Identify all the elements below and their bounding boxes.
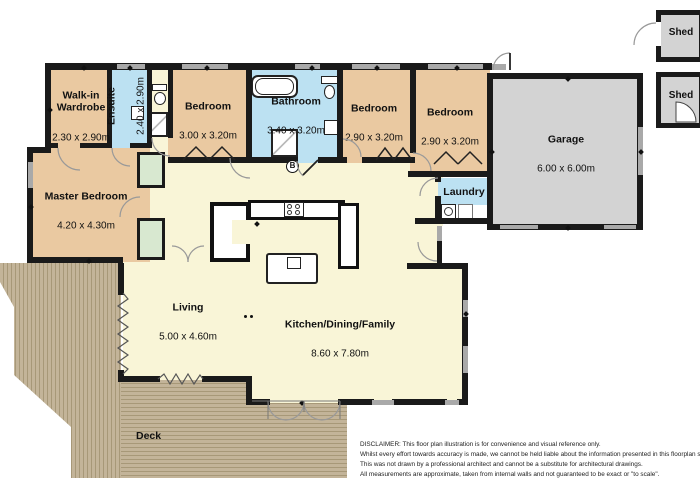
kitchen-bench-side — [338, 203, 359, 269]
window — [295, 64, 320, 69]
room-dims: 8.60 x 7.80m — [285, 349, 395, 362]
room-label-master: Master Bedroom 4.20 x 4.30m — [45, 173, 128, 252]
floor-plan: B Walk-in Wardrobe 2.30 x 2.90m Ensuite … — [0, 0, 700, 500]
stove-burner-icon — [287, 204, 292, 209]
room-name: Shed — [669, 90, 693, 102]
room-label-garage: Garage 6.00 x 6.00m — [537, 116, 595, 195]
wall-segment — [118, 263, 124, 295]
room-name: Shed — [669, 27, 693, 39]
wall-segment — [318, 157, 340, 163]
room-label-kitchen: Kitchen/Dining/Family 8.60 x 7.80m — [285, 301, 395, 380]
disclaimer-line: Whilst every effort towards accuracy is … — [360, 450, 700, 460]
room-dims: 3.00 x 3.20m — [179, 131, 237, 144]
entry-nook-floor — [405, 218, 440, 268]
disclaimer-text: DISCLAIMER: This floor plan illustration… — [360, 440, 700, 480]
room-name: Garage — [537, 134, 595, 146]
wall-segment — [462, 268, 468, 405]
room-label-deck: Deck — [136, 412, 161, 460]
room-name: Kitchen/Dining/Family — [285, 319, 395, 331]
room-label-living: Living 5.00 x 4.60m — [159, 284, 217, 363]
room-name: Bathroom — [267, 96, 325, 108]
wall-segment — [45, 63, 492, 70]
closet-top — [137, 152, 165, 188]
window — [463, 346, 468, 373]
room-name: Laundry — [443, 186, 484, 198]
wall-segment — [27, 257, 123, 263]
room-label-bathroom: Bathroom 3.40 x 3.20m — [267, 78, 325, 157]
room-dims: 2.40 x 2.90m — [136, 77, 149, 135]
window — [372, 400, 394, 405]
entry-porch — [441, 226, 487, 265]
wall-segment — [415, 218, 492, 224]
wall-segment — [392, 399, 447, 405]
closet-bottom — [137, 218, 165, 260]
room-label-laundry: Laundry — [443, 168, 484, 216]
disclaimer-line: DISCLAIMER: This floor plan illustration… — [360, 440, 700, 450]
window — [492, 64, 506, 70]
wall-segment — [437, 240, 442, 269]
wall-segment — [337, 68, 343, 160]
window — [604, 225, 636, 229]
room-label-ensuite: Ensuite 2.40 x 2.90m — [88, 77, 167, 135]
stove-burner-icon — [295, 204, 300, 209]
wall-segment — [118, 376, 160, 382]
room-dims: 5.00 x 4.60m — [159, 332, 217, 345]
room-name: Ensuite — [106, 77, 118, 135]
toilet-bowl-icon — [324, 85, 335, 99]
wall-segment — [410, 68, 416, 153]
window — [445, 400, 459, 405]
room-name: Bedroom — [345, 103, 403, 115]
room-name: Bedroom — [179, 101, 237, 113]
stove-burner-icon — [287, 210, 292, 215]
room-name: Bedroom — [421, 107, 479, 119]
island-sink-icon — [287, 257, 301, 269]
room-name: Living — [159, 302, 217, 314]
room-dims: 3.40 x 3.20m — [267, 126, 325, 139]
room-label-bedroom2: Bedroom 3.00 x 3.20m — [179, 83, 237, 162]
shed-top-door-gap — [655, 22, 661, 46]
wall-segment — [202, 376, 252, 382]
room-label-bedroom4: Bedroom 2.90 x 3.20m — [421, 89, 479, 168]
window — [28, 162, 33, 188]
disclaimer-line: This was not drawn by a professional arc… — [360, 460, 700, 470]
door-stop-dot — [244, 315, 247, 318]
wall-segment — [250, 399, 270, 405]
disclaimer-line: All measurements are approximate, taken … — [360, 470, 700, 480]
wall-segment — [338, 399, 374, 405]
vanity-icon — [324, 120, 338, 135]
window — [437, 226, 442, 241]
stove-burner-icon — [295, 210, 300, 215]
wall-segment — [168, 68, 173, 138]
room-dims: 6.00 x 6.00m — [537, 164, 595, 177]
room-label-shed-top: Shed — [669, 9, 693, 57]
room-label-shed-bottom: Shed — [669, 72, 693, 120]
window — [500, 225, 538, 229]
shed-door-arc — [634, 23, 656, 45]
wall-segment — [130, 143, 151, 148]
pantry-opening — [232, 220, 252, 244]
room-dims: 2.90 x 3.20m — [421, 137, 479, 150]
b-marker: B — [286, 160, 299, 173]
room-dims: 4.20 x 4.30m — [45, 221, 128, 234]
wall-segment — [435, 196, 441, 222]
wall-segment — [246, 68, 252, 163]
room-name: Master Bedroom — [45, 191, 128, 203]
deck-left — [0, 263, 121, 478]
room-dims: 2.90 x 3.20m — [345, 133, 403, 146]
door-stop-dot — [250, 315, 253, 318]
room-name: Deck — [136, 430, 161, 442]
room-label-bedroom3: Bedroom 2.90 x 3.20m — [345, 85, 403, 164]
